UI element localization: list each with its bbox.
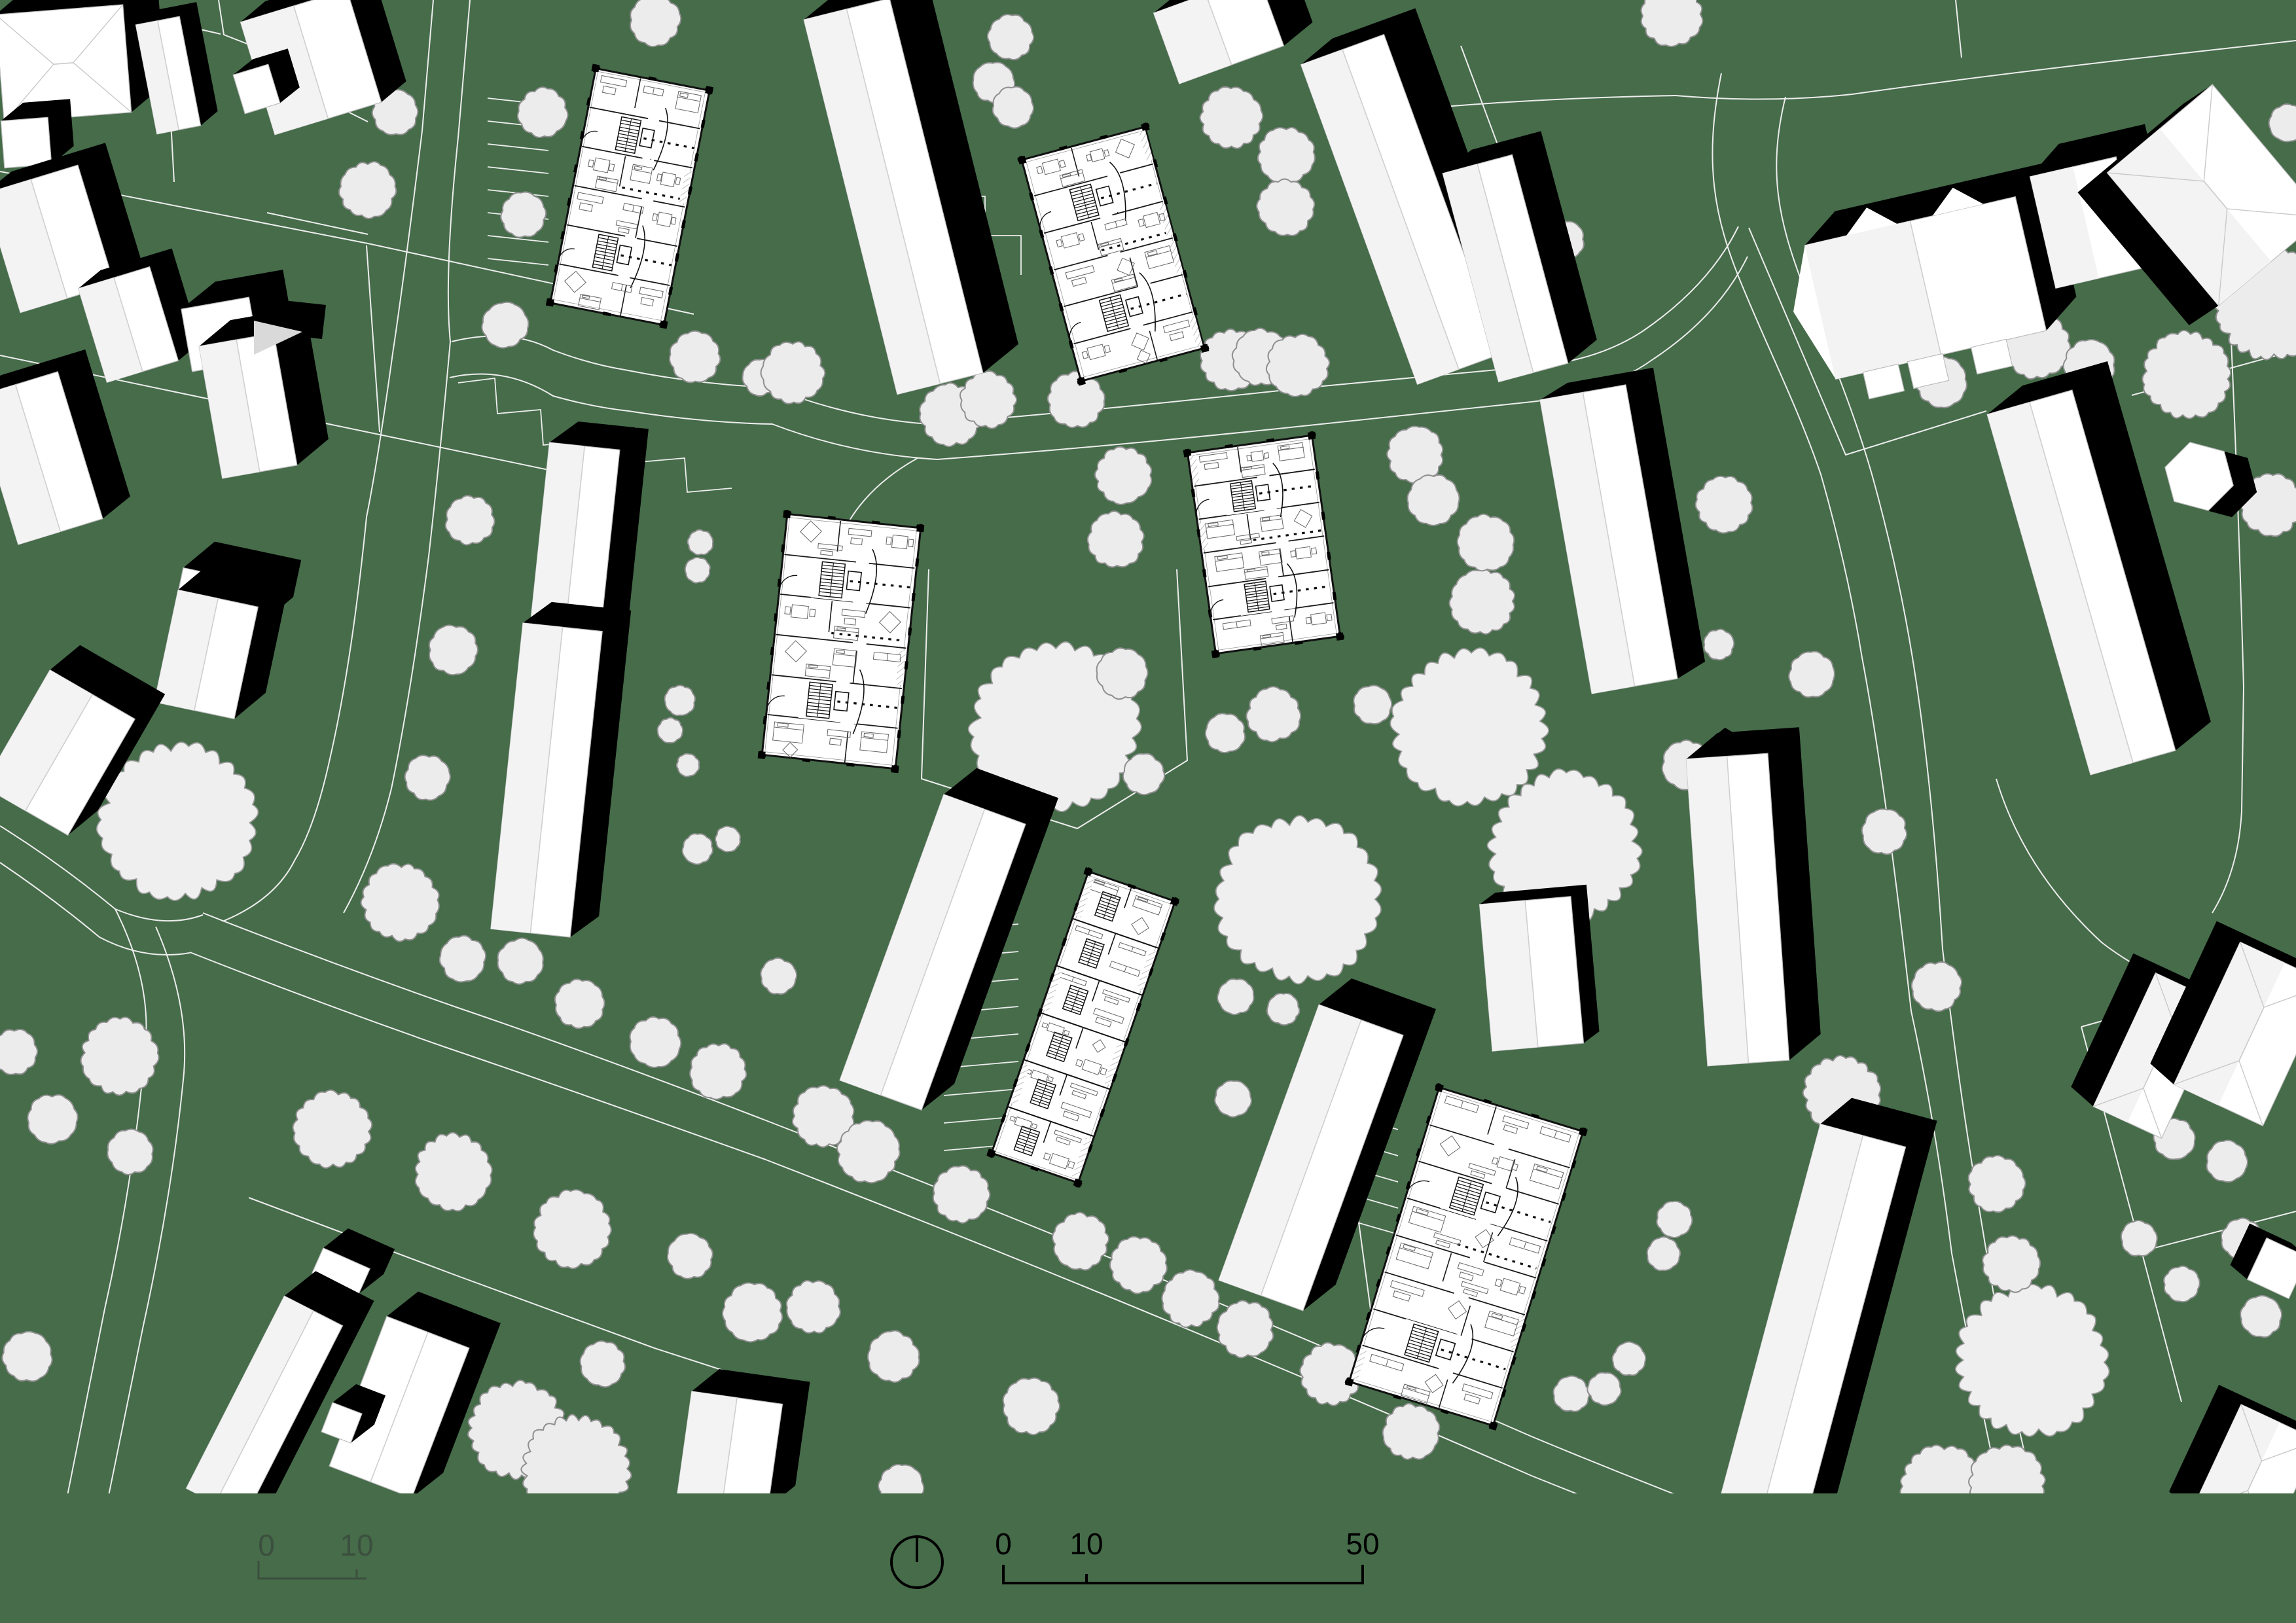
svg-text:10: 10 — [1069, 1527, 1103, 1561]
svg-text:50: 50 — [1346, 1527, 1379, 1561]
svg-text:10: 10 — [340, 1528, 373, 1562]
svg-text:0: 0 — [258, 1528, 275, 1562]
svg-text:0: 0 — [995, 1527, 1012, 1561]
